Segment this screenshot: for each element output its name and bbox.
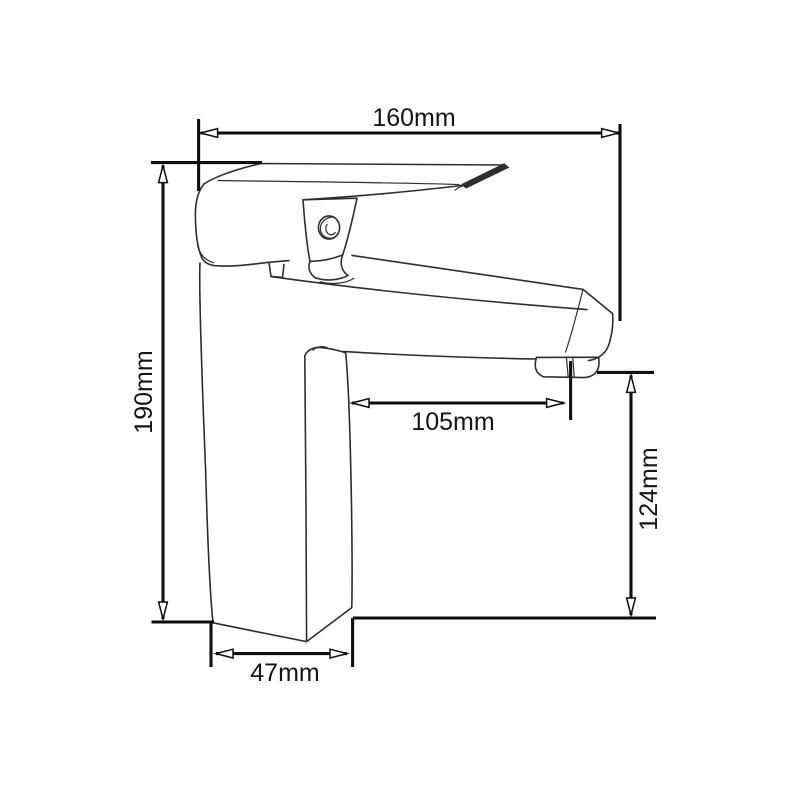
spout-underside xyxy=(343,351,536,359)
dimension-overall-width: 160mm xyxy=(199,104,620,321)
body-dome xyxy=(195,184,289,266)
dimension-base-width: 47mm xyxy=(211,618,353,687)
base-column-outline xyxy=(200,263,352,642)
handle-lever-tip xyxy=(462,164,509,188)
arrowhead-down xyxy=(627,598,636,615)
handle-lever-underside xyxy=(303,186,462,200)
arrowhead-right xyxy=(547,399,564,408)
handle-neck xyxy=(303,198,357,261)
extension-lines xyxy=(353,372,656,618)
arrowhead-left xyxy=(352,399,369,408)
base-width-label: 47mm xyxy=(250,659,319,687)
spout-top-crease xyxy=(271,277,587,310)
handle-screw xyxy=(318,216,339,239)
extension-lines xyxy=(199,119,620,321)
arrowhead-right xyxy=(330,649,347,658)
spout-reach-label: 105mm xyxy=(411,408,494,436)
arrowhead-left xyxy=(201,129,218,138)
spout-top-edge xyxy=(352,255,583,289)
body-notch xyxy=(269,263,284,278)
dimension-outlet-height: 124mm xyxy=(353,372,663,618)
handle-lever-crease xyxy=(218,181,459,185)
arrowhead-up xyxy=(159,166,168,183)
arrowhead-up xyxy=(627,375,636,392)
arrowhead-left xyxy=(216,649,233,658)
arrowhead-right xyxy=(602,129,619,138)
arrowhead-down xyxy=(159,602,168,619)
handle-screw-detail xyxy=(320,217,336,238)
spout-end xyxy=(583,289,613,360)
overall-width-label: 160mm xyxy=(372,104,455,132)
extension-lines xyxy=(151,163,262,622)
overall-height-label: 190mm xyxy=(130,350,158,433)
base-column-corner xyxy=(305,347,346,640)
drawing-canvas: 160mm 190mm 105mm 124mm 47mm xyxy=(0,0,800,800)
faucet-dimension-diagram: 160mm 190mm 105mm 124mm 47mm xyxy=(0,0,800,800)
spout-end-crease xyxy=(566,289,583,352)
outlet-height-label: 124mm xyxy=(635,447,663,530)
